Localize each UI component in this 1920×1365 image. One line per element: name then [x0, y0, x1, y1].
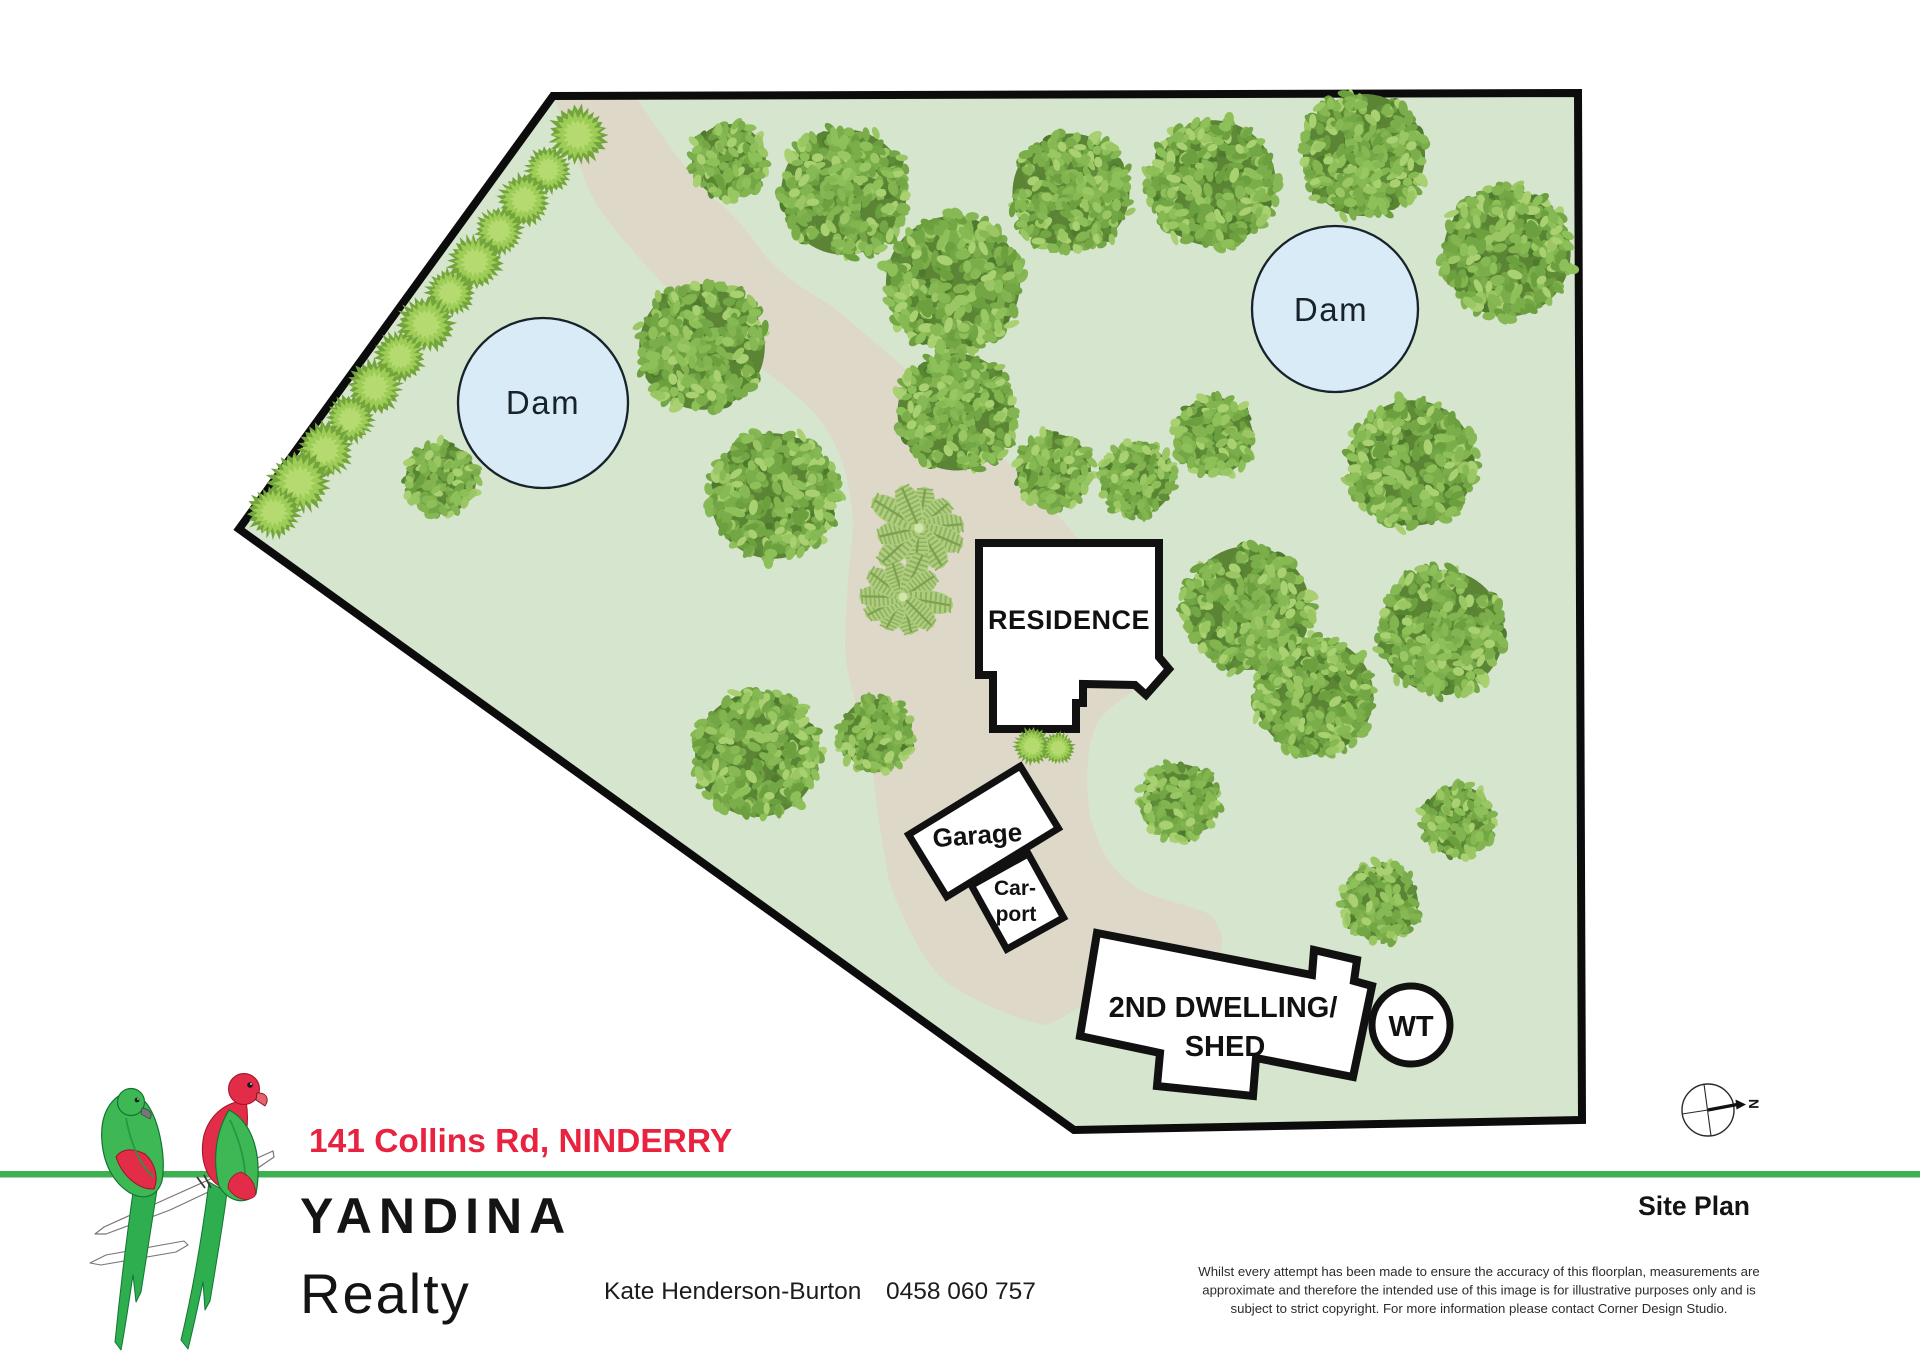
svg-text:port: port	[996, 903, 1037, 926]
svg-text:RESIDENCE: RESIDENCE	[988, 605, 1150, 635]
svg-text:Dam: Dam	[506, 384, 580, 421]
svg-text:approximate and therefore the: approximate and therefore the intended u…	[1202, 1283, 1756, 1298]
svg-text:Kate Henderson-Burton: Kate Henderson-Burton	[604, 1278, 861, 1305]
svg-text:Car-: Car-	[994, 877, 1036, 900]
svg-text:Dam: Dam	[1294, 291, 1368, 328]
svg-text:Realty: Realty	[300, 1262, 471, 1325]
svg-text:Garage: Garage	[932, 817, 1023, 853]
svg-text:141 Collins Rd, NINDERRY: 141 Collins Rd, NINDERRY	[309, 1123, 732, 1160]
svg-text:0458 060 757: 0458 060 757	[886, 1278, 1036, 1305]
svg-text:YANDINA: YANDINA	[300, 1188, 572, 1244]
svg-text:subject to strict copyright. F: subject to strict copyright. For more in…	[1231, 1301, 1728, 1316]
svg-text:Site Plan: Site Plan	[1638, 1191, 1750, 1221]
svg-text:Whilst every attempt has been: Whilst every attempt has been made to en…	[1198, 1264, 1759, 1279]
svg-text:N: N	[1746, 1099, 1761, 1109]
svg-text:2ND DWELLING/: 2ND DWELLING/	[1109, 992, 1338, 1024]
svg-text:SHED: SHED	[1185, 1031, 1266, 1063]
svg-text:WT: WT	[1388, 1011, 1433, 1043]
